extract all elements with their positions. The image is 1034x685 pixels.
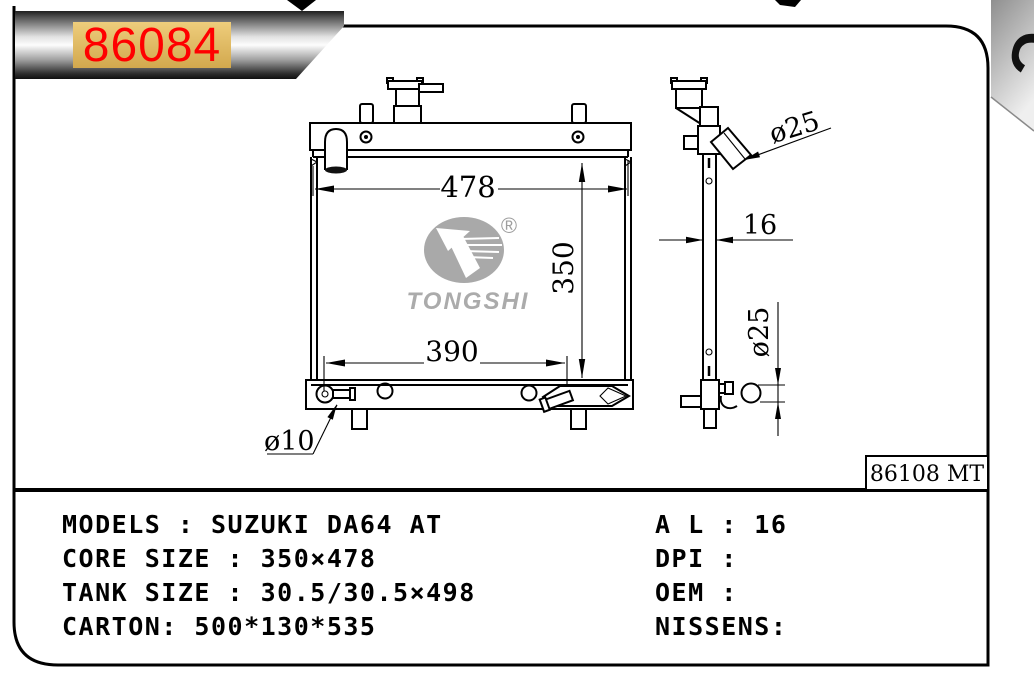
mount-pin (360, 104, 373, 123)
dimension-350: 350 (547, 163, 585, 378)
spec-core-size: CORE SIZE : 350×478 (62, 544, 376, 573)
spec-models: MODELS : SUZUKI DA64 AT (62, 510, 443, 539)
spec-nissens: NISSENS: (655, 612, 787, 641)
core-hole (706, 349, 712, 355)
mount-pin (571, 409, 586, 429)
inlet-pipe (325, 129, 347, 170)
spec-al: A L : 16 (655, 510, 787, 539)
part-number: 86084 (83, 19, 221, 72)
core-hole (706, 178, 712, 184)
dim-label-outlet: ø25 (744, 307, 775, 358)
dim-label-height: 350 (547, 241, 580, 294)
spec-table: MODELS : SUZUKI DA64 AT CORE SIZE : 350×… (62, 510, 787, 641)
mount-pin (572, 104, 586, 123)
part-number-banner: 86084 (15, 11, 344, 79)
spec-carton: CARTON: 500*130*535 (62, 612, 376, 641)
registered-mark: ® (501, 213, 517, 238)
ref-code-box: 86108 MT (866, 456, 988, 490)
overflow-spout (419, 84, 443, 92)
filler-cap (388, 81, 422, 89)
spec-tank-size: TANK SIZE : 30.5/30.5×498 (62, 578, 476, 607)
drain-plug (317, 386, 334, 403)
spec-oem: OEM : (655, 578, 738, 607)
ref-code: 86108 MT (870, 462, 985, 487)
corner-fold-tab: C (991, 0, 1034, 131)
catalog-page: 86084 C ® TONGSHI (0, 0, 1034, 685)
decorative-arrow-fragment (287, 0, 316, 11)
dimension-inlet: ø25 (744, 106, 831, 160)
dim-label-drain: ø10 (264, 426, 315, 457)
outlet-pipe-side (742, 384, 761, 403)
bottom-tank-side (701, 380, 719, 409)
mount-pin (352, 409, 367, 429)
dimension-outlet: ø25 (744, 302, 785, 436)
dim-label-lower-width: 390 (425, 335, 478, 368)
dimension-drain: ø10 (264, 404, 337, 457)
filler-neck (394, 106, 421, 123)
dim-label-width: 478 (440, 170, 495, 204)
tongshi-logo: ® TONGSHI (407, 213, 530, 315)
dim-label-inlet: ø25 (766, 106, 823, 150)
inlet-pipe-opening (325, 167, 347, 174)
drawing-sheet: 86084 C ® TONGSHI (0, 0, 1034, 685)
filler-cap-side (672, 81, 706, 89)
decorative-arrow-fragment (775, 0, 801, 7)
dimension-thickness: 16 (659, 210, 793, 243)
dim-label-thickness: 16 (743, 210, 777, 241)
filler-neck-side (700, 107, 718, 126)
radiator-side-view (671, 78, 761, 428)
spec-dpi: DPI : (655, 544, 738, 573)
logo-brand-text: TONGSHI (407, 288, 530, 315)
mount-pin-side (704, 409, 716, 428)
